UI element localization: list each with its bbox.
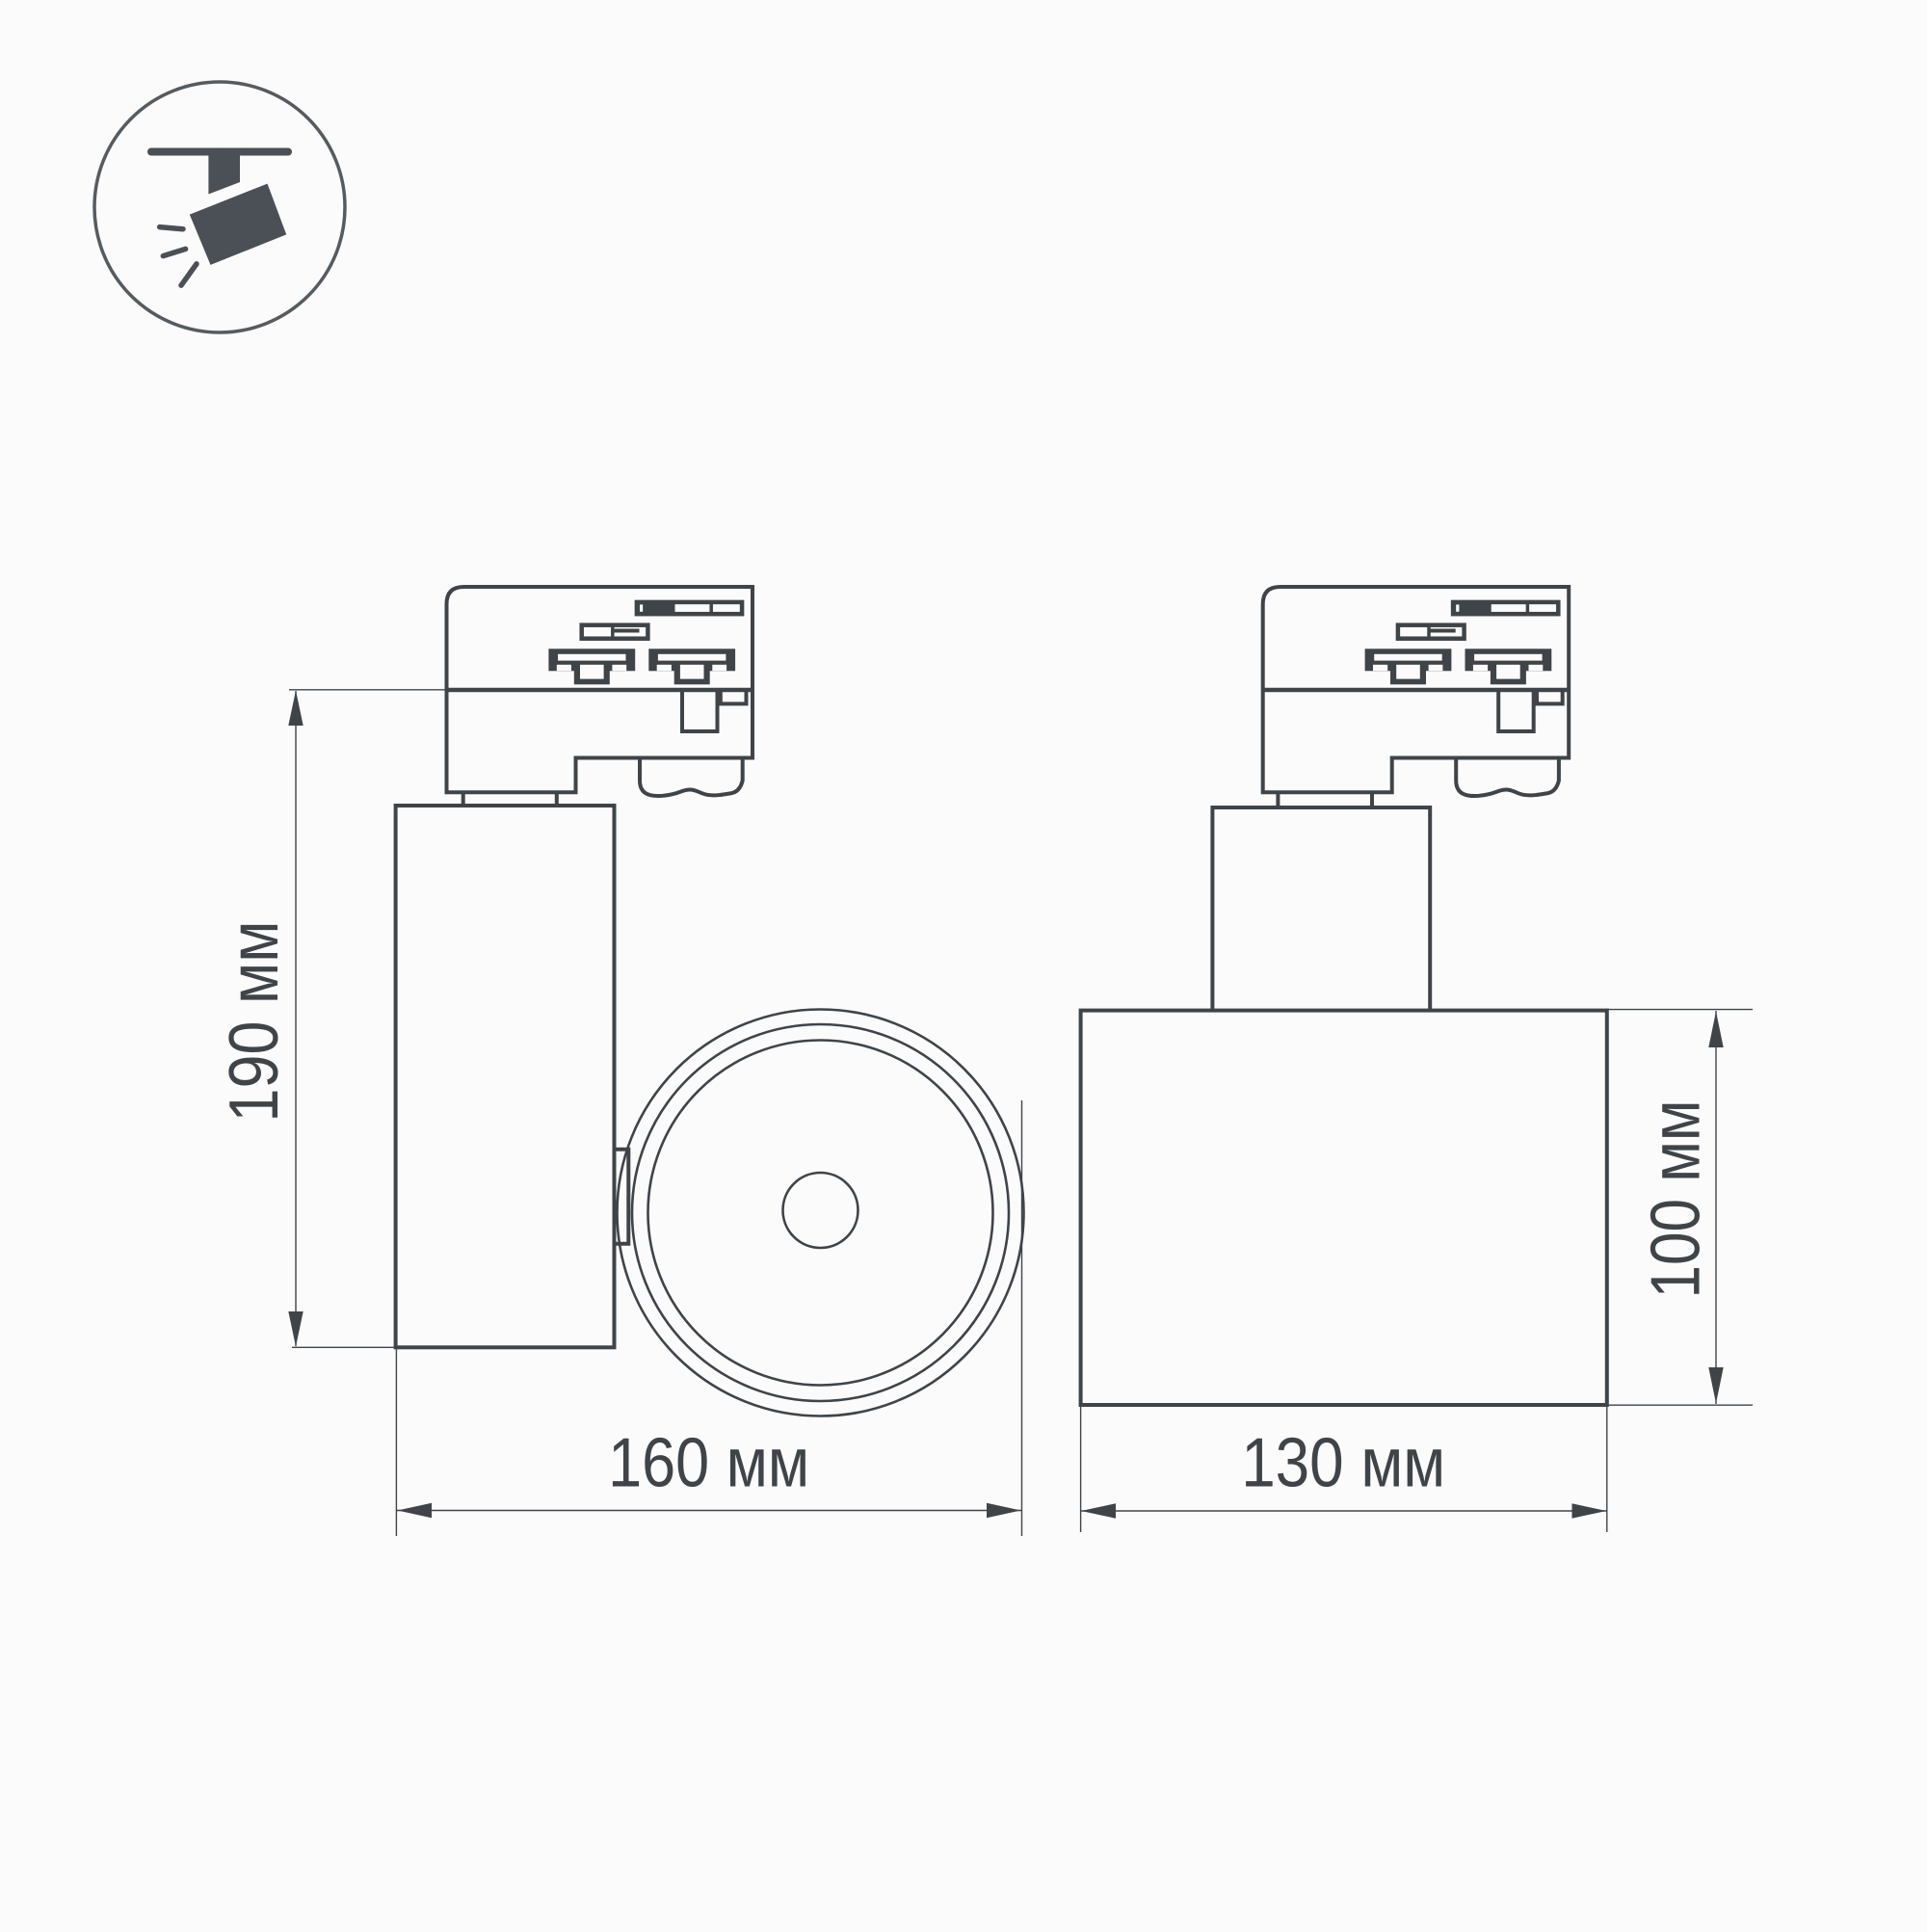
svg-text:190 мм: 190 мм bbox=[216, 921, 293, 1123]
svg-text:130 мм: 130 мм bbox=[1241, 1425, 1445, 1502]
svg-text:160 мм: 160 мм bbox=[608, 1425, 809, 1502]
svg-text:100 мм: 100 мм bbox=[1638, 1100, 1715, 1299]
